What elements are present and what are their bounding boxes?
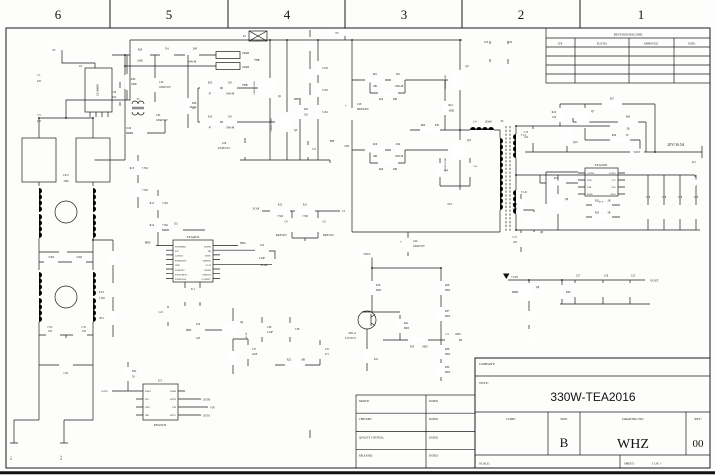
- capacitor-icon: [599, 283, 607, 297]
- capacitor-icon: [660, 205, 668, 219]
- value-label: 104: [112, 96, 117, 99]
- ref-label: T3: [137, 98, 141, 101]
- net-label: HBG: [240, 242, 246, 245]
- diode-icon: [185, 52, 199, 58]
- pin-label: SNSMAINS: [175, 278, 187, 281]
- pin-label: SGNDPFC: [175, 270, 185, 272]
- relay-icon: [249, 31, 267, 41]
- revision-title: REVISION RECORD: [614, 33, 643, 37]
- approval-table: DRAWN: CHECKED: QUALITY CONTROL: RELEASE…: [356, 395, 475, 468]
- resistor-icon: [438, 160, 443, 180]
- net-label: DPFC: [294, 98, 301, 101]
- ref-label: LF1: [99, 290, 105, 294]
- resistor-icon: [285, 363, 305, 368]
- value-label: 68pF/1KV: [323, 234, 334, 237]
- ref-label: R16: [552, 111, 557, 114]
- col-ltr: LTR: [558, 43, 563, 46]
- zone-number: 1: [638, 7, 645, 22]
- pin-label: DSA: [612, 186, 617, 189]
- ground-icon: [691, 177, 700, 187]
- feedback-section: + C40 100uF/25V VOUT R18 0603 R28 0603 R…: [345, 232, 462, 390]
- ground-icon: [196, 306, 205, 315]
- core-lines: [506, 126, 510, 232]
- ref-label: R12: [278, 204, 283, 207]
- value-label: 100K: [449, 110, 455, 113]
- net-label: 9V: [335, 32, 338, 35]
- size-label: SIZE:: [560, 417, 568, 421]
- resistor-icon: [111, 248, 116, 268]
- capacitor-icon: [244, 345, 252, 359]
- ref-label: C30: [159, 81, 164, 84]
- ref-label: C21: [159, 311, 164, 314]
- pin-label: OUTA: [170, 414, 176, 417]
- value-label: 7.5M: [162, 202, 168, 205]
- ref-label: Q6: [565, 198, 569, 201]
- title-label: TITLE:: [479, 381, 489, 385]
- inductor-icon: [93, 214, 96, 238]
- released-label: RELEASED:: [359, 455, 373, 458]
- resistor-icon: [270, 209, 290, 214]
- part-label: CE65H1100ND: [445, 75, 447, 89]
- inductor-icon: [470, 127, 494, 130]
- checked-label: CHECKED:: [359, 418, 372, 421]
- connector-label: J2-1: [692, 161, 697, 164]
- capacitor-icon: [676, 205, 684, 219]
- ground-icon: [184, 129, 193, 138]
- value-label: 22nF: [252, 353, 258, 356]
- diode-icon: [160, 52, 174, 58]
- ref-label: C25: [631, 275, 636, 278]
- value-label: 470pF/1KV: [218, 147, 231, 150]
- value-label: 225: [37, 120, 42, 123]
- resistor-icon: [443, 98, 448, 118]
- diode-icon: [391, 77, 405, 83]
- controller-section: TEA2016 U1 SNSTIMER SCL GATELS SNSBOOST …: [130, 155, 346, 315]
- value-label: 0603: [445, 315, 451, 318]
- ref-label: C24: [196, 323, 201, 326]
- capacitor-icon: [181, 288, 189, 302]
- winding-icon: [500, 186, 503, 210]
- net-label: FBP: [330, 140, 335, 143]
- ref-label: R40: [566, 291, 571, 294]
- resistor-icon: [200, 120, 220, 125]
- value-label: 102: [82, 330, 87, 333]
- ref-label: C11: [312, 148, 317, 151]
- emi-input-section: LF2 25M 3.3M 3.3M LF1 1.5M CY2 102 CY1 1…: [10, 40, 216, 460]
- ground-icon: [258, 342, 267, 351]
- diode-icon: [169, 227, 183, 233]
- ref-label: R60: [421, 124, 426, 127]
- ref-label: C17: [513, 236, 518, 239]
- net-label: 8V: [52, 49, 55, 52]
- choke-circle: [55, 286, 77, 308]
- net-label: OC1: [448, 203, 454, 206]
- ref-label: R51: [304, 108, 309, 111]
- value-label: 100: [552, 116, 557, 119]
- ref-label: U2: [79, 65, 83, 68]
- zone-ticks: [110, 0, 580, 28]
- ref-label: C37: [252, 348, 257, 351]
- ref-label: CY2: [48, 326, 54, 329]
- net-label: OUTB: [203, 399, 210, 402]
- ground-icon: [525, 331, 534, 341]
- llc-section: + C28 68uF/450V R21 10K D11 1N4148 R24 2…: [344, 40, 500, 232]
- pin-label: SNSA: [610, 193, 616, 196]
- resistor-icon: [156, 193, 161, 213]
- shunt-regulator-icon: [362, 347, 374, 365]
- zener-icon: [526, 311, 532, 325]
- pin-label: ENBB: [170, 391, 176, 393]
- resistor-icon: [618, 120, 638, 125]
- thermistor-icon: [108, 309, 120, 327]
- value-label: 100uF/25V: [159, 86, 171, 89]
- polarity-mark: +: [689, 204, 691, 206]
- part-label: OP1-B: [246, 332, 248, 339]
- ground-icon: [151, 103, 160, 112]
- optocoupler-icon: [358, 311, 376, 329]
- pin-label: GND: [145, 407, 150, 409]
- ref-label: R30: [131, 78, 136, 81]
- sheet-value: 1 OF 1: [652, 462, 661, 466]
- ref-label: D14: [396, 143, 401, 146]
- ref-label: R14: [150, 224, 155, 227]
- diode-icon: [307, 69, 313, 83]
- ref-label: R33: [595, 212, 600, 215]
- chassis-ground-icon: [303, 438, 317, 448]
- capacitor-icon: [571, 283, 579, 297]
- pin-label: GND: [175, 265, 180, 267]
- resistor-icon: [378, 161, 398, 166]
- zone-number: 4: [284, 7, 291, 22]
- resistor-icon: [136, 180, 141, 200]
- pin-label: GATEA: [609, 172, 617, 175]
- value-label: 3.3M: [48, 256, 54, 259]
- capacitor-icon: [191, 326, 205, 334]
- ref-label: R29: [138, 49, 143, 52]
- value-label: 20R: [393, 98, 398, 101]
- part-label: TEA2016: [187, 235, 200, 239]
- net-label: C5: [342, 210, 346, 213]
- net-label: LBC: [344, 145, 349, 148]
- quality-label: QUALITY CONTROL:: [359, 437, 384, 440]
- ref-label: U1: [191, 287, 195, 291]
- schematic-canvas: 6 5 4 3 2 1 REVISION RECORD LTR ECO NO: …: [0, 0, 715, 476]
- ref-label: D16: [127, 127, 132, 130]
- inductor-icon: [39, 272, 42, 296]
- ground-icon: [363, 373, 372, 382]
- capacitor-icon: [529, 129, 537, 143]
- capacitor-icon: [148, 111, 156, 125]
- ground-icon: [123, 101, 132, 110]
- value-label: 1N4148: [395, 85, 404, 88]
- net-label: SCAP: [261, 264, 268, 267]
- ref-label: R15: [130, 167, 135, 170]
- value-label: 7.5M: [277, 215, 283, 218]
- inductor-icon: [39, 298, 42, 322]
- winding-label: T1-D: [521, 191, 527, 194]
- part-label: CE6941100ND: [271, 118, 273, 132]
- capacitor-icon: [486, 45, 494, 59]
- resistor-icon: [231, 348, 236, 368]
- part-label: CE6941100ND: [254, 81, 256, 95]
- scale-label: SCALE:: [479, 462, 490, 466]
- value-label: 225: [37, 80, 42, 83]
- small-transformer-icon: [132, 101, 144, 115]
- inductor-box: [216, 52, 240, 59]
- pin-label: SUPREG: [203, 260, 212, 262]
- ref-label: CY1: [82, 326, 88, 329]
- value-label: 0603: [455, 333, 461, 336]
- polarity-mark: +: [400, 240, 402, 244]
- part-label: TEA1995: [595, 163, 608, 167]
- ground-icon: [504, 64, 513, 74]
- value-label: 224: [474, 166, 478, 168]
- resistor-icon: [519, 196, 524, 216]
- resistor-icon: [378, 91, 398, 96]
- polarity-mark: +: [657, 204, 659, 206]
- ground-icon: [271, 259, 280, 268]
- inductor-icon: [39, 188, 42, 212]
- value-label: 1N4148: [395, 155, 404, 158]
- value-label: 2.2nF: [259, 257, 266, 260]
- value-label: 100R: [444, 170, 449, 172]
- ground-icon: [517, 252, 526, 261]
- resistor-icon: [316, 80, 321, 100]
- value-label: 3.3M: [76, 256, 82, 259]
- resistor-icon: [295, 209, 315, 214]
- pin-label: ENBA: [145, 390, 151, 393]
- zone-number: 2: [518, 7, 525, 22]
- pin-label: GND: [587, 180, 592, 182]
- dated-label: DATED:: [429, 400, 438, 403]
- dated-label: DATED:: [429, 455, 438, 458]
- value-label: 68uF/450V: [357, 108, 369, 111]
- ground-icon: [326, 163, 335, 172]
- ref-label: R17: [554, 177, 559, 180]
- part-label: LTV-817S: [345, 337, 356, 340]
- polarity-mark: +: [597, 284, 599, 286]
- capacitor-icon: [316, 345, 324, 359]
- resistor-icon: [41, 260, 61, 265]
- zone-number: 6: [55, 7, 62, 22]
- capacitor-icon: [504, 45, 512, 59]
- transformer-section: T1 T1-C T1-D: [500, 119, 527, 232]
- resistor-icon: [439, 360, 444, 380]
- resistor-icon: [398, 316, 403, 336]
- resistor-icon: [156, 215, 161, 235]
- resistor-icon: [408, 338, 428, 343]
- value-label: 0603: [404, 327, 410, 330]
- value-label: 10R: [301, 359, 306, 362]
- ref-label: C3: [37, 114, 41, 117]
- capacitor-icon: [59, 361, 73, 369]
- diode-icon: [110, 283, 116, 297]
- inductor-icon: [39, 214, 42, 238]
- choke-circle: [55, 201, 77, 223]
- value-label: 50R: [513, 208, 518, 211]
- pin-label: SNSTIMER: [175, 246, 186, 248]
- ref-label: C26: [112, 91, 117, 94]
- ground-icon: [456, 190, 465, 199]
- ref-label: D45: [193, 48, 198, 51]
- net-label: OUTA: [190, 106, 197, 109]
- dated-label: DATED:: [429, 418, 438, 421]
- col-date: DATE:: [688, 43, 696, 46]
- zone-number: 5: [166, 7, 173, 22]
- rev-label: REV:: [694, 417, 701, 421]
- revision-record-table: REVISION RECORD LTR ECO NO: APPROVED: DA…: [546, 28, 710, 83]
- diode-icon: [391, 147, 405, 153]
- net-label: +12V: [511, 275, 519, 279]
- net-label: OUTA: [203, 415, 210, 418]
- ground-icon: [646, 304, 655, 313]
- net-label: GATEP: [101, 390, 109, 393]
- polarity-mark: +: [624, 284, 626, 286]
- mosfet-icon: [275, 112, 293, 132]
- ref-label: C22: [260, 244, 265, 247]
- ref-label: R49: [379, 168, 384, 171]
- mosfet-icon: [573, 108, 591, 128]
- resistor-icon: [69, 260, 89, 265]
- power-arrow-icon: [503, 274, 510, 280]
- ref-label: R24: [379, 98, 384, 101]
- resistor-icon: [370, 278, 375, 298]
- ref-label: C18: [662, 196, 667, 199]
- mosfet-icon: [448, 70, 466, 90]
- size-value: B: [560, 435, 569, 450]
- ground-icon: [486, 62, 495, 71]
- ref-label: R18: [376, 284, 381, 287]
- resistor-icon: [365, 78, 385, 83]
- ref-label: C8: [322, 221, 326, 224]
- value-label: 50: [626, 134, 629, 137]
- ref-label: C16: [646, 196, 651, 199]
- value-label: 10R: [373, 155, 378, 158]
- capacitor-icon: [255, 247, 269, 255]
- ref-label: D4: [165, 48, 169, 51]
- transistor-icon: [518, 283, 534, 301]
- pin-label: INB: [145, 415, 149, 417]
- schematic-sheet: 6 5 4 3 2 1 REVISION RECORD LTR ECO NO: …: [0, 0, 715, 476]
- pin-label: SUPIC: [205, 256, 212, 258]
- net-label: BPFC: [145, 242, 152, 245]
- pin-label: INA: [145, 398, 149, 401]
- capacitor-icon: [348, 107, 356, 121]
- capacitor-icon: [404, 238, 412, 252]
- ref-label: C31: [325, 348, 330, 351]
- pin-label: SNSCURPFC: [175, 275, 188, 277]
- pin-label: OUTB: [170, 399, 176, 401]
- ref-label: R42: [626, 116, 631, 119]
- mosfet-icon: [258, 78, 276, 98]
- secondary-section: R27 R16 100 C13 222 Q7 Q10 R42 2R R34 50…: [513, 98, 702, 261]
- value-label: 47R: [435, 124, 440, 127]
- net-label: FBB: [243, 84, 248, 87]
- capacitor-icon: [258, 323, 266, 337]
- resistor-icon: [439, 342, 444, 362]
- sheet-label: SHEET:: [624, 462, 635, 466]
- value-label: 0603: [445, 371, 451, 374]
- aux-supply-section: 8V U2 LSC6060N R29 100K D4 D45 1N4148 R3…: [37, 47, 216, 138]
- ref-label: R50: [513, 203, 518, 206]
- ref-label: C27: [576, 275, 581, 278]
- value-label: 1N4148: [188, 61, 197, 64]
- ref-label: R61: [449, 104, 454, 107]
- ref-label: Q5: [294, 129, 298, 132]
- ground-icon: [244, 366, 253, 375]
- value-label: 471: [325, 353, 330, 356]
- transistor-icon: [222, 321, 238, 339]
- ref-label: D2: [174, 223, 178, 226]
- output-spec: 20V/16.5A: [668, 143, 685, 147]
- value-label: 100uH: [484, 121, 491, 124]
- value-label: 100uH: [242, 66, 249, 69]
- ref-label: R11: [303, 204, 308, 207]
- ref-label: R10: [208, 116, 213, 119]
- resistor-icon: [365, 148, 385, 153]
- value-label: 7.5M: [142, 167, 148, 170]
- ref-label: C4: [445, 333, 449, 336]
- net-label: SCAP: [253, 208, 260, 211]
- connector-label: J1-1: [10, 455, 13, 460]
- ref-label: C23: [484, 41, 489, 44]
- ground-icon: [437, 381, 446, 390]
- winding-icon: [500, 162, 503, 186]
- ref-label: Q8: [540, 231, 544, 234]
- pin-label: GATEB: [587, 172, 595, 175]
- pin-label: SCL: [175, 251, 180, 253]
- value-label: 100K: [137, 60, 143, 63]
- diode-icon: [133, 130, 147, 136]
- ref-label: C34: [156, 114, 161, 117]
- winding-icon: [500, 138, 503, 162]
- ref-label: R41: [404, 322, 409, 325]
- driver-section: U5 P3610CN ENBA INA GND INB ENBB OUTB VI…: [98, 306, 330, 448]
- pin-label: GATEPFC: [202, 278, 212, 281]
- ref-label: R19: [373, 143, 378, 146]
- value-label: 7.5M: [162, 224, 168, 227]
- ref-label: RT1: [100, 317, 105, 320]
- ref-label: R52: [132, 370, 137, 373]
- ref-label: R35: [410, 346, 415, 349]
- capacitor-icon: [644, 205, 652, 219]
- resistor-icon: [439, 304, 444, 324]
- rev-value: 00: [693, 438, 705, 450]
- resistor-icon: [136, 158, 141, 178]
- resistor-icon: [316, 102, 321, 122]
- polarity-mark: +: [345, 104, 347, 108]
- capacitor-icon: [151, 78, 159, 92]
- value-label: 1N4148: [226, 127, 235, 130]
- pin-label: SUPHS: [204, 246, 212, 248]
- value-label: 0603: [422, 346, 428, 349]
- value-label: 7.5M: [302, 215, 308, 218]
- ref-label: R34: [612, 134, 617, 137]
- ground-icon: [181, 306, 190, 315]
- ref-label: U5: [158, 379, 162, 383]
- ref-label: R22: [287, 359, 292, 362]
- polarity-mark: +: [641, 204, 643, 206]
- ref-label: R27: [610, 98, 615, 101]
- resistor-icon: [130, 53, 150, 58]
- diode-icon: [307, 37, 313, 51]
- ref-label: U6: [374, 357, 378, 361]
- inductor-box: [216, 63, 240, 70]
- revision-grid: [546, 38, 710, 83]
- value-label: 10K: [373, 85, 378, 88]
- ref-label: R38: [445, 348, 450, 351]
- aux-output-section: +12V Q9 R40 C27 C26 C25 + + + VOUT: [503, 274, 659, 342]
